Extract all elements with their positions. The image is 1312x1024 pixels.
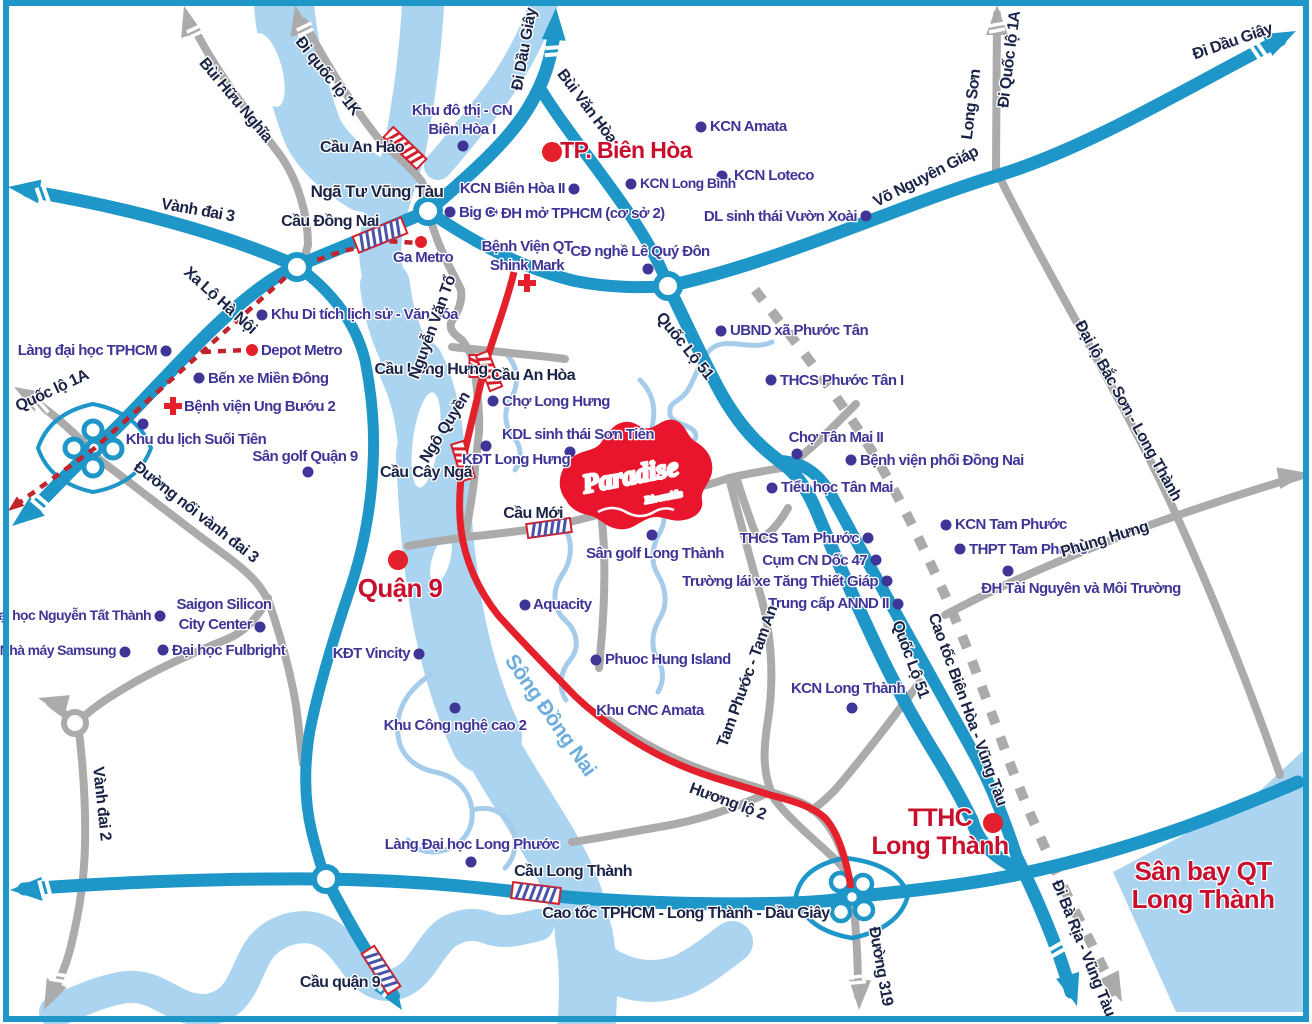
svg-text:Khu đô thị - CN: Khu đô thị - CN xyxy=(412,102,512,119)
svg-text:KĐT Long Hưng: KĐT Long Hưng xyxy=(462,451,570,468)
svg-text:Ngã Tư Vũng Tàu: Ngã Tư Vũng Tàu xyxy=(311,182,444,201)
svg-text:KCN Tam Phước: KCN Tam Phước xyxy=(955,516,1067,533)
svg-text:Bệnh viện phối Đồng Nai: Bệnh viện phối Đồng Nai xyxy=(860,452,1024,469)
svg-text:Quận 9: Quận 9 xyxy=(358,573,443,603)
svg-text:Cầu quận 9: Cầu quận 9 xyxy=(300,974,381,991)
svg-text:Cao tốc TPHCM - Long Thành - D: Cao tốc TPHCM - Long Thành - Dầu Giây xyxy=(542,905,830,922)
svg-text:TP. Biên Hòa: TP. Biên Hòa xyxy=(560,137,692,163)
svg-text:Ga Metro: Ga Metro xyxy=(393,249,454,266)
svg-text:Cầu Long Thành: Cầu Long Thành xyxy=(514,863,632,880)
svg-text:Cầu Cây Ngã: Cầu Cây Ngã xyxy=(380,464,473,481)
svg-text:Bệnh viện Ung Bướu 2: Bệnh viện Ung Bướu 2 xyxy=(184,398,335,415)
svg-text:DL sinh thái Vườn Xoài: DL sinh thái Vườn Xoài xyxy=(704,208,857,225)
svg-text:THCS Tam Phước: THCS Tam Phước xyxy=(739,530,859,547)
svg-text:KCN Amata: KCN Amata xyxy=(710,118,788,135)
svg-text:Làng Đại học Long Phước: Làng Đại học Long Phước xyxy=(385,836,560,853)
svg-text:Khu Công nghệ cao 2: Khu Công nghệ cao 2 xyxy=(384,717,527,734)
svg-text:KDL sinh thái Sơn Tiên: KDL sinh thái Sơn Tiên xyxy=(502,426,654,443)
svg-text:Chợ Long Hưng: Chợ Long Hưng xyxy=(502,393,610,410)
svg-text:Phuoc Hung Island: Phuoc Hung Island xyxy=(605,651,731,668)
svg-text:Trung cấp ANND II: Trung cấp ANND II xyxy=(768,595,889,612)
svg-text:Đại học Fulbright: Đại học Fulbright xyxy=(172,642,286,659)
svg-text:KCN Long Thành: KCN Long Thành xyxy=(791,680,906,697)
svg-text:KĐT Vincity: KĐT Vincity xyxy=(333,645,412,662)
svg-text:Cầu Đồng Nai: Cầu Đồng Nai xyxy=(281,213,379,230)
svg-text:Cụm CN Dốc 47: Cụm CN Dốc 47 xyxy=(762,552,867,569)
svg-text:ĐH mở TPHCM (cơ sở 2): ĐH mở TPHCM (cơ sở 2) xyxy=(501,205,665,222)
svg-text:THCS Phước Tân I: THCS Phước Tân I xyxy=(780,372,904,389)
svg-text:City Center: City Center xyxy=(179,616,253,633)
svg-text:Bến xe Miền Đông: Bến xe Miền Đông xyxy=(208,370,329,387)
svg-text:Nhà máy Samsung: Nhà máy Samsung xyxy=(0,642,116,658)
svg-text:Cầu Mới: Cầu Mới xyxy=(503,505,563,522)
svg-text:Depot Metro: Depot Metro xyxy=(261,342,342,359)
svg-text:Sân golf Long Thành: Sân golf Long Thành xyxy=(586,545,724,562)
svg-text:Cầu An Hảo: Cầu An Hảo xyxy=(320,139,405,156)
svg-text:Big C: Big C xyxy=(459,204,496,221)
svg-text:Khu du lịch Suối Tiên: Khu du lịch Suối Tiên xyxy=(126,431,267,448)
svg-text:Khu CNC Amata: Khu CNC Amata xyxy=(596,702,705,719)
svg-text:KCN Loteco: KCN Loteco xyxy=(734,167,814,184)
svg-text:Biên Hòa I: Biên Hòa I xyxy=(428,121,496,138)
svg-text:Cầu An Hòa: Cầu An Hòa xyxy=(491,367,576,384)
svg-text:Shink Mark: Shink Mark xyxy=(490,257,565,274)
svg-text:Làng đại học TPHCM: Làng đại học TPHCM xyxy=(18,342,157,359)
svg-text:ĐH Tài Nguyên và Môi Trường: ĐH Tài Nguyên và Môi Trường xyxy=(981,580,1181,597)
svg-text:Aquacity: Aquacity xyxy=(533,596,593,613)
svg-text:Cầu Long Hưng: Cầu Long Hưng xyxy=(374,361,487,378)
svg-text:Chợ Tân Mai II: Chợ Tân Mai II xyxy=(789,429,884,446)
svg-text:Long Thành: Long Thành xyxy=(871,832,1008,860)
svg-text:Saigon Silicon: Saigon Silicon xyxy=(177,596,272,613)
svg-text:UBND xã Phước Tân: UBND xã Phước Tân xyxy=(730,322,868,339)
svg-text:KCN Biên Hòa II: KCN Biên Hòa II xyxy=(460,180,566,197)
svg-text:Trường lái xe Tăng Thiết Giáp: Trường lái xe Tăng Thiết Giáp xyxy=(682,573,878,590)
svg-text:Đại học Nguyễn Tất Thành: Đại học Nguyễn Tất Thành xyxy=(0,607,151,623)
svg-text:Sân golf Quận 9: Sân golf Quận 9 xyxy=(252,448,357,465)
svg-text:TTHC: TTHC xyxy=(908,804,973,832)
svg-text:Bệnh Viện QT: Bệnh Viện QT xyxy=(482,238,573,255)
svg-text:CĐ nghề Lê Quý Đôn: CĐ nghề Lê Quý Đôn xyxy=(570,243,710,260)
svg-text:Sân bay QT: Sân bay QT xyxy=(1134,856,1272,886)
svg-text:Long Thành: Long Thành xyxy=(1132,884,1275,914)
svg-text:Tiểu học Tân Mai: Tiểu học Tân Mai xyxy=(781,479,893,496)
svg-text:KCN Long Bình: KCN Long Bình xyxy=(640,175,736,191)
